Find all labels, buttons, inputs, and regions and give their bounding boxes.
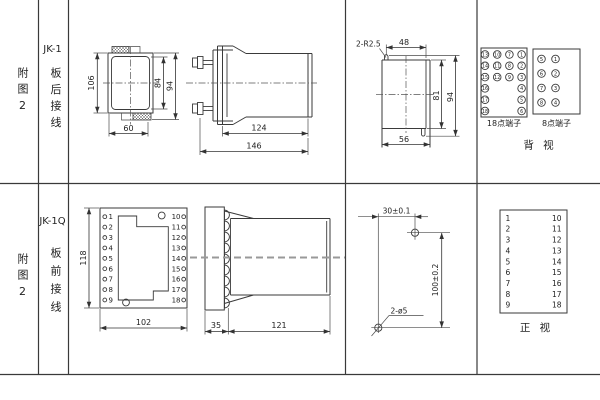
- dim-118-label: 118: [79, 250, 88, 265]
- drawing-svg: 106 84 94 60: [0, 0, 600, 400]
- mounting-stud-bottom: [193, 103, 214, 115]
- table-number-left: 6: [506, 268, 511, 277]
- dim-56-label: 56: [399, 135, 409, 144]
- dim-146-label: 146: [246, 142, 261, 151]
- front-front-view: 123456789 101112131415161718 118 102: [79, 208, 187, 332]
- table-number-left: 9: [506, 301, 511, 310]
- terminal-circle: [182, 288, 186, 292]
- dim-124-label: 124: [251, 124, 266, 133]
- table-number-right: 10: [552, 214, 562, 223]
- terminal18-grid: 131071141182151293164175186: [481, 51, 525, 115]
- terminal-bump: [225, 221, 230, 231]
- terminal-circle: [103, 225, 107, 229]
- dim-121-label: 121: [271, 321, 286, 330]
- terminal-bump: [225, 265, 230, 275]
- terminal-circle: [182, 298, 186, 302]
- table-number-right: 18: [552, 301, 562, 310]
- terminal-number: 9: [508, 75, 511, 81]
- terminal-number: 16: [482, 86, 488, 92]
- mounting-stud-top: [193, 57, 214, 69]
- dim-100-label: 100±0.2: [431, 264, 440, 297]
- table-number-right: 13: [552, 246, 562, 255]
- terminal-circle: [182, 225, 186, 229]
- terminal-circle: [103, 215, 107, 219]
- terminal-number: 13: [482, 52, 488, 58]
- terminal-circle: [103, 267, 107, 271]
- terminal-circle: [182, 236, 186, 240]
- terminal8-grid: 51627384: [538, 55, 560, 106]
- rear-terminal-view: 131071141182151293164175186 18点端子 516273…: [481, 48, 580, 152]
- terminal-circle: [103, 277, 107, 281]
- terminal-number: 12: [494, 75, 500, 81]
- table-number-right: 17: [552, 290, 562, 299]
- dim-106-label: 106: [87, 75, 96, 90]
- terminal-number: 6: [109, 265, 114, 273]
- terminal-number: 5: [540, 57, 543, 63]
- terminal-circle: [103, 256, 107, 260]
- terminal-bump: [225, 232, 230, 242]
- front-side-view: 35 121: [190, 207, 345, 335]
- terminal-number: 18: [482, 109, 488, 115]
- drilling-plan-view: 30±0.1 100±0.2 2-ø5: [358, 207, 450, 337]
- terminal-number: 3: [520, 75, 523, 81]
- table-number-left: 2: [506, 225, 511, 234]
- terminal-number: 15: [482, 75, 488, 81]
- dim-35-label: 35: [211, 321, 221, 330]
- terminal-number: 12: [172, 234, 181, 242]
- terminal-circle: [103, 236, 107, 240]
- terminal-number: 6: [520, 109, 523, 115]
- rear-front-view: 106 84 94 60: [87, 47, 179, 137]
- dim-102-label: 102: [136, 318, 151, 327]
- table-number-left: 3: [506, 236, 511, 245]
- dim-60-label: 60: [123, 124, 133, 133]
- table-number-right: 16: [552, 279, 562, 288]
- terminal-number: 7: [540, 86, 543, 92]
- dim-30-label: 30±0.1: [383, 207, 411, 216]
- front-view-left-terminals: 123456789: [103, 213, 114, 304]
- front-view-label: 正 视: [520, 321, 553, 334]
- terminal-circle: [103, 298, 107, 302]
- terminal-circle: [182, 267, 186, 271]
- terminal-number: 16: [172, 276, 181, 284]
- drawing-sheet: 附图2 JK-1 板后接线 附图2 JK-1Q 板前接线: [0, 0, 600, 400]
- terminal-bump: [225, 287, 230, 297]
- terminal-circle: [182, 215, 186, 219]
- terminal-number: 1: [554, 57, 557, 63]
- terminal18-label: 18点端子: [487, 118, 521, 128]
- terminal-circle: [182, 256, 186, 260]
- terminal-number: 2: [520, 64, 523, 70]
- terminal-bump: [225, 254, 230, 264]
- front-view-right-terminals: 101112131415161718: [172, 213, 186, 304]
- terminal-circle: [182, 246, 186, 250]
- table-number-left: 8: [506, 290, 511, 299]
- table-number-right: 11: [552, 225, 562, 234]
- terminal-number: 15: [172, 265, 181, 273]
- terminal-number: 8: [109, 286, 113, 294]
- terminal8-label: 8点端子: [542, 118, 571, 128]
- terminal-number: 11: [494, 64, 500, 70]
- terminal-number: 10: [494, 52, 500, 58]
- terminal-number: 17: [482, 98, 488, 104]
- terminal-number: 6: [540, 71, 543, 77]
- dim-94-overall-label: 94: [446, 92, 455, 102]
- rear-side-view: 124 146: [186, 46, 317, 155]
- screw-hole-top: [158, 212, 165, 219]
- table-number-right: 12: [552, 236, 562, 245]
- terminal-number: 7: [109, 276, 113, 284]
- terminal-number: 14: [172, 255, 181, 263]
- terminal-number: 3: [554, 86, 557, 92]
- terminal-circle: [103, 288, 107, 292]
- terminal-number: 4: [109, 244, 114, 252]
- table-number-right: 15: [552, 268, 562, 277]
- terminal-number: 7: [508, 52, 511, 58]
- front-terminal-table: 110211312413514615716817918 正 视: [500, 210, 567, 334]
- dim-48-label: 48: [399, 38, 409, 47]
- terminal-number: 4: [520, 86, 523, 92]
- dim-84-label: 84: [154, 78, 163, 88]
- terminal-number: 10: [172, 213, 181, 221]
- terminal-number: 2: [554, 71, 557, 77]
- terminal-bump: [225, 243, 230, 253]
- rear-view-label: 背 视: [523, 139, 556, 152]
- terminal-number: 18: [172, 296, 181, 304]
- table-number-left: 1: [506, 214, 511, 223]
- terminal-number: 1: [520, 52, 523, 58]
- table-number-left: 4: [506, 246, 511, 255]
- terminal-number: 5: [520, 98, 523, 104]
- terminal-number: 2: [109, 224, 113, 232]
- table-number-left: 7: [506, 279, 511, 288]
- terminal-number: 17: [172, 286, 181, 294]
- panel-cutout-view: 2-R2.5 48 81 94 56: [356, 38, 460, 148]
- terminal-number: 5: [109, 255, 113, 263]
- dim-94-label: 94: [166, 81, 175, 91]
- terminal-circle: [103, 246, 107, 250]
- terminal-number: 1: [109, 213, 113, 221]
- terminal-bump: [225, 276, 230, 286]
- table-number-right: 14: [552, 257, 562, 266]
- terminal-number: 3: [109, 234, 113, 242]
- terminal-number: 13: [172, 244, 181, 252]
- terminal-number: 8: [508, 64, 511, 70]
- terminal-circle: [182, 277, 186, 281]
- radius-note-label: 2-R2.5: [356, 40, 381, 49]
- table-number-rows: 110211312413514615716817918: [506, 214, 562, 310]
- terminal-number: 11: [172, 224, 181, 232]
- holes-note-label: 2-ø5: [391, 307, 408, 316]
- terminal-number: 14: [482, 64, 488, 70]
- table-number-left: 5: [506, 257, 511, 266]
- dim-81-label: 81: [432, 90, 441, 100]
- terminal-number: 9: [109, 296, 113, 304]
- terminal-number: 8: [540, 100, 543, 106]
- terminal-bumps: [225, 210, 230, 308]
